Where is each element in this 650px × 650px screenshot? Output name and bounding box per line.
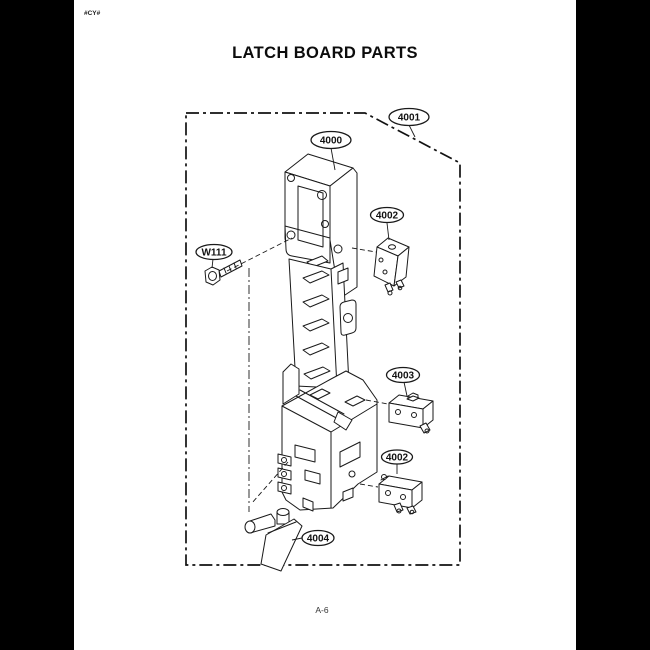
part-label-4004: 4004 [302, 531, 334, 546]
part-label-4003-text: 4003 [392, 371, 415, 382]
part-label-4000-text: 4000 [320, 136, 343, 147]
part-label-4004-text: 4004 [307, 534, 330, 545]
page-number: A-6 [315, 605, 329, 615]
part-label-4002-upper: 4002 [371, 208, 404, 223]
part-label-w111-text: W111 [201, 248, 226, 259]
diagram-canvas: #CY# LATCH BOARD PARTS [0, 0, 650, 650]
part-label-4002-lower-text: 4002 [386, 453, 409, 464]
part-label-4002-upper-text: 4002 [376, 211, 399, 222]
doc-code: #CY# [84, 10, 101, 17]
part-label-4002-lower: 4002 [382, 450, 413, 464]
part-label-4000: 4000 [311, 132, 351, 149]
page-title: LATCH BOARD PARTS [232, 44, 418, 62]
part-label-4001: 4001 [389, 109, 429, 126]
document-page: #CY# LATCH BOARD PARTS [0, 0, 650, 650]
part-label-4001-text: 4001 [398, 113, 421, 124]
part-label-w111: W111 [196, 245, 232, 260]
part-label-4003: 4003 [387, 368, 420, 383]
